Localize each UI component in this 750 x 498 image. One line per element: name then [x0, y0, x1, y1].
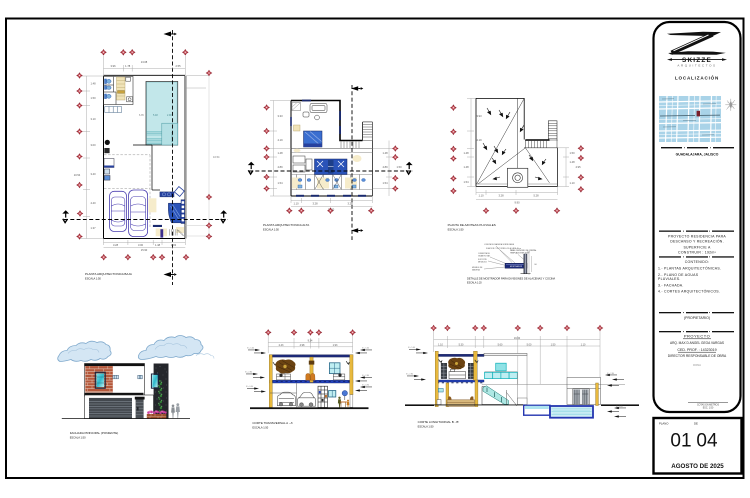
svg-text:AGOSTO DE 2025: AGOSTO DE 2025	[671, 463, 724, 470]
svg-text:01: 01	[670, 431, 691, 452]
svg-text:1.54: 1.54	[382, 181, 388, 185]
svg-text:10.54: 10.54	[74, 173, 81, 177]
svg-text:ESCALA 1:50: ESCALA 1:50	[85, 277, 101, 281]
svg-text:6.35: 6.35	[139, 114, 144, 117]
svg-text:1.78: 1.78	[125, 64, 131, 68]
svg-text:1.48: 1.48	[382, 151, 388, 155]
svg-text:ESCALA 1:50: ESCALA 1:50	[418, 425, 434, 429]
svg-text:ESCALA 1:50: ESCALA 1:50	[263, 228, 279, 232]
svg-text:1.48: 1.48	[569, 160, 575, 164]
svg-text:N + 2.80: N + 2.80	[406, 374, 413, 376]
svg-text:METALICO: METALICO	[478, 261, 488, 264]
svg-text:1.10: 1.10	[581, 343, 586, 346]
svg-text:GRANITO NAT.: GRANITO NAT.	[478, 255, 491, 258]
svg-text:DETALLE DE MOSTRADOR PARA DIVI: DETALLE DE MOSTRADOR PARA DIVISIONES DE …	[467, 277, 555, 281]
svg-text:1.54: 1.54	[463, 180, 469, 184]
svg-text:10.54: 10.54	[213, 155, 220, 159]
svg-text:3.28: 3.28	[498, 194, 504, 198]
svg-text:N + 2.80: N + 2.80	[362, 375, 369, 377]
svg-text:FACHADA PRINCIPAL (PONIENTE): FACHADA PRINCIPAL (PONIENTE)	[70, 431, 119, 435]
svg-text:3.28: 3.28	[312, 202, 318, 206]
svg-text:PROYECTO: PROYECTO	[684, 334, 710, 339]
svg-text:1.54: 1.54	[277, 181, 283, 185]
svg-text:1.48: 1.48	[155, 243, 161, 247]
svg-text:4.89: 4.89	[382, 165, 388, 169]
svg-text:9.90: 9.90	[514, 200, 520, 204]
svg-text:9.34: 9.34	[308, 340, 313, 343]
svg-text:3.28: 3.28	[113, 243, 119, 247]
svg-text:N + 5.60: N + 5.60	[362, 348, 369, 350]
svg-text:PLANTA ARQUITECTONICA BAJA: PLANTA ARQUITECTONICA BAJA	[85, 272, 132, 276]
svg-text:1.10: 1.10	[293, 202, 299, 206]
svg-text:4.40: 4.40	[90, 201, 96, 205]
svg-text:04: 04	[696, 431, 718, 452]
svg-text:(PROPIETARIO): (PROPIETARIO)	[684, 316, 710, 320]
svg-text:LOCALIZACIÓN: LOCALIZACIÓN	[675, 74, 719, 81]
svg-text:3.33: 3.33	[277, 114, 283, 118]
svg-text:19.60: 19.60	[514, 337, 521, 340]
svg-text:CORTE LONGITUDINAL B - B': CORTE LONGITUDINAL B - B'	[418, 420, 460, 424]
svg-text:3.- FACHADA.: 3.- FACHADA.	[658, 284, 684, 288]
svg-text:4.19: 4.19	[277, 138, 283, 142]
svg-text:N + 5.60: N + 5.60	[408, 347, 415, 349]
svg-text:5.60: 5.60	[498, 343, 503, 346]
svg-text:N + 0.90: N + 0.90	[246, 386, 253, 388]
svg-text:1.48: 1.48	[90, 82, 96, 86]
svg-text:COTAS EN METROS: COTAS EN METROS	[697, 404, 720, 407]
svg-text:2.43: 2.43	[279, 344, 284, 347]
svg-text:5.48: 5.48	[153, 114, 158, 117]
svg-text:DE: DE	[694, 422, 698, 426]
svg-text:3.93: 3.93	[476, 114, 482, 118]
svg-text:ESCALA 1:50: ESCALA 1:50	[70, 436, 86, 440]
svg-text:DESCANSO Y RECREACIÓN.: DESCANSO Y RECREACIÓN.	[670, 239, 724, 244]
svg-text:1.50: 1.50	[90, 96, 96, 100]
svg-text:CONSTRUIR : 192m²: CONSTRUIR : 192m²	[678, 251, 716, 255]
svg-text:FIRMA: FIRMA	[693, 363, 701, 367]
svg-text:1.48: 1.48	[463, 165, 469, 169]
svg-text:ARQ. MAX D ANGEL GEOA VARGAS: ARQ. MAX D ANGEL GEOA VARGAS	[670, 341, 724, 345]
svg-text:ESC. 1:50: ESC. 1:50	[703, 408, 714, 410]
svg-text:ESCALA 1:50: ESCALA 1:50	[448, 228, 464, 232]
svg-text:3.00: 3.00	[138, 243, 144, 247]
svg-text:3.10: 3.10	[90, 117, 96, 121]
svg-text:CED. PROF. : 14323019: CED. PROF. : 14323019	[677, 348, 716, 352]
svg-text:2.55: 2.55	[175, 64, 181, 68]
svg-text:4.89: 4.89	[277, 165, 283, 169]
svg-text:5.28: 5.28	[533, 194, 539, 198]
svg-text:3.00: 3.00	[90, 143, 96, 147]
svg-text:1.50: 1.50	[396, 165, 402, 169]
svg-text:1.50: 1.50	[551, 343, 556, 346]
svg-text:DIRECTOR RESPONSABLE DE OBRA: DIRECTOR RESPONSABLE DE OBRA	[668, 354, 727, 358]
svg-text:1.10: 1.10	[569, 181, 575, 185]
svg-text:5.30: 5.30	[459, 343, 464, 346]
svg-text:MADERA: MADERA	[472, 269, 480, 272]
svg-text:3.40: 3.40	[90, 172, 96, 176]
svg-text:3.93: 3.93	[171, 243, 177, 247]
svg-text:5.00: 5.00	[527, 343, 532, 346]
svg-text:N + 5.60: N + 5.60	[247, 348, 254, 350]
svg-text:MOSTRADOR: MOSTRADOR	[510, 265, 523, 268]
svg-text:GUADALAJARA, JALISCO: GUADALAJARA, JALISCO	[676, 153, 719, 157]
svg-text:N + 0.90: N + 0.90	[362, 385, 369, 387]
svg-text:1.10: 1.10	[478, 194, 484, 198]
svg-text:4.- CORTES ARQUITECTÓNICOS.: 4.- CORTES ARQUITECTÓNICOS.	[658, 289, 720, 294]
svg-text:3.28: 3.28	[347, 202, 353, 206]
svg-text:1.37: 1.37	[90, 226, 96, 230]
svg-text:1.48: 1.48	[277, 151, 283, 155]
svg-text:SUPERFICIE A: SUPERFICIE A	[683, 246, 711, 250]
svg-text:1.10: 1.10	[438, 343, 443, 346]
svg-text:1.93: 1.93	[333, 344, 338, 347]
svg-text:ESCALA 1:50: ESCALA 1:50	[252, 426, 268, 430]
svg-text:PROYECTO RESIDENCIA PARA: PROYECTO RESIDENCIA PARA	[668, 235, 726, 239]
svg-text:4.98: 4.98	[300, 344, 305, 347]
svg-text:1.50: 1.50	[569, 151, 575, 155]
svg-text:LOSETA DE MADERA SOBRE BASE: LOSETA DE MADERA SOBRE BASE	[484, 243, 515, 246]
svg-text:15.90: 15.90	[141, 248, 148, 252]
svg-text:ESCALA 1:20: ESCALA 1:20	[467, 282, 482, 285]
svg-text:ARQUITECTOS: ARQUITECTOS	[677, 64, 716, 68]
svg-text:PLUVIALES.: PLUVIALES.	[658, 277, 681, 281]
svg-text:13.08: 13.08	[141, 60, 148, 64]
svg-text:N + 2.80: N + 2.80	[245, 372, 252, 374]
svg-text:PLANO: PLANO	[659, 422, 669, 426]
svg-text:PLANTA ARQUITECTONICA ALTA: PLANTA ARQUITECTONICA ALTA	[263, 223, 309, 227]
svg-text:CORTE TRANSVERSAL A - A': CORTE TRANSVERSAL A - A'	[252, 421, 293, 425]
svg-text:3.96: 3.96	[110, 64, 116, 68]
svg-text:1.48: 1.48	[463, 151, 469, 155]
svg-text:4.95: 4.95	[575, 165, 581, 169]
svg-text:1.- PLANTAS ARQUITECTÓNICAS.: 1.- PLANTAS ARQUITECTÓNICAS.	[658, 266, 721, 271]
svg-text:4.19: 4.19	[476, 138, 482, 142]
svg-text:PLANTA DE AZOTEAS PLUVIALES: PLANTA DE AZOTEAS PLUVIALES	[448, 223, 496, 227]
svg-text:CONTENIDO:: CONTENIDO:	[685, 260, 709, 264]
svg-text:2.90: 2.90	[167, 114, 172, 117]
